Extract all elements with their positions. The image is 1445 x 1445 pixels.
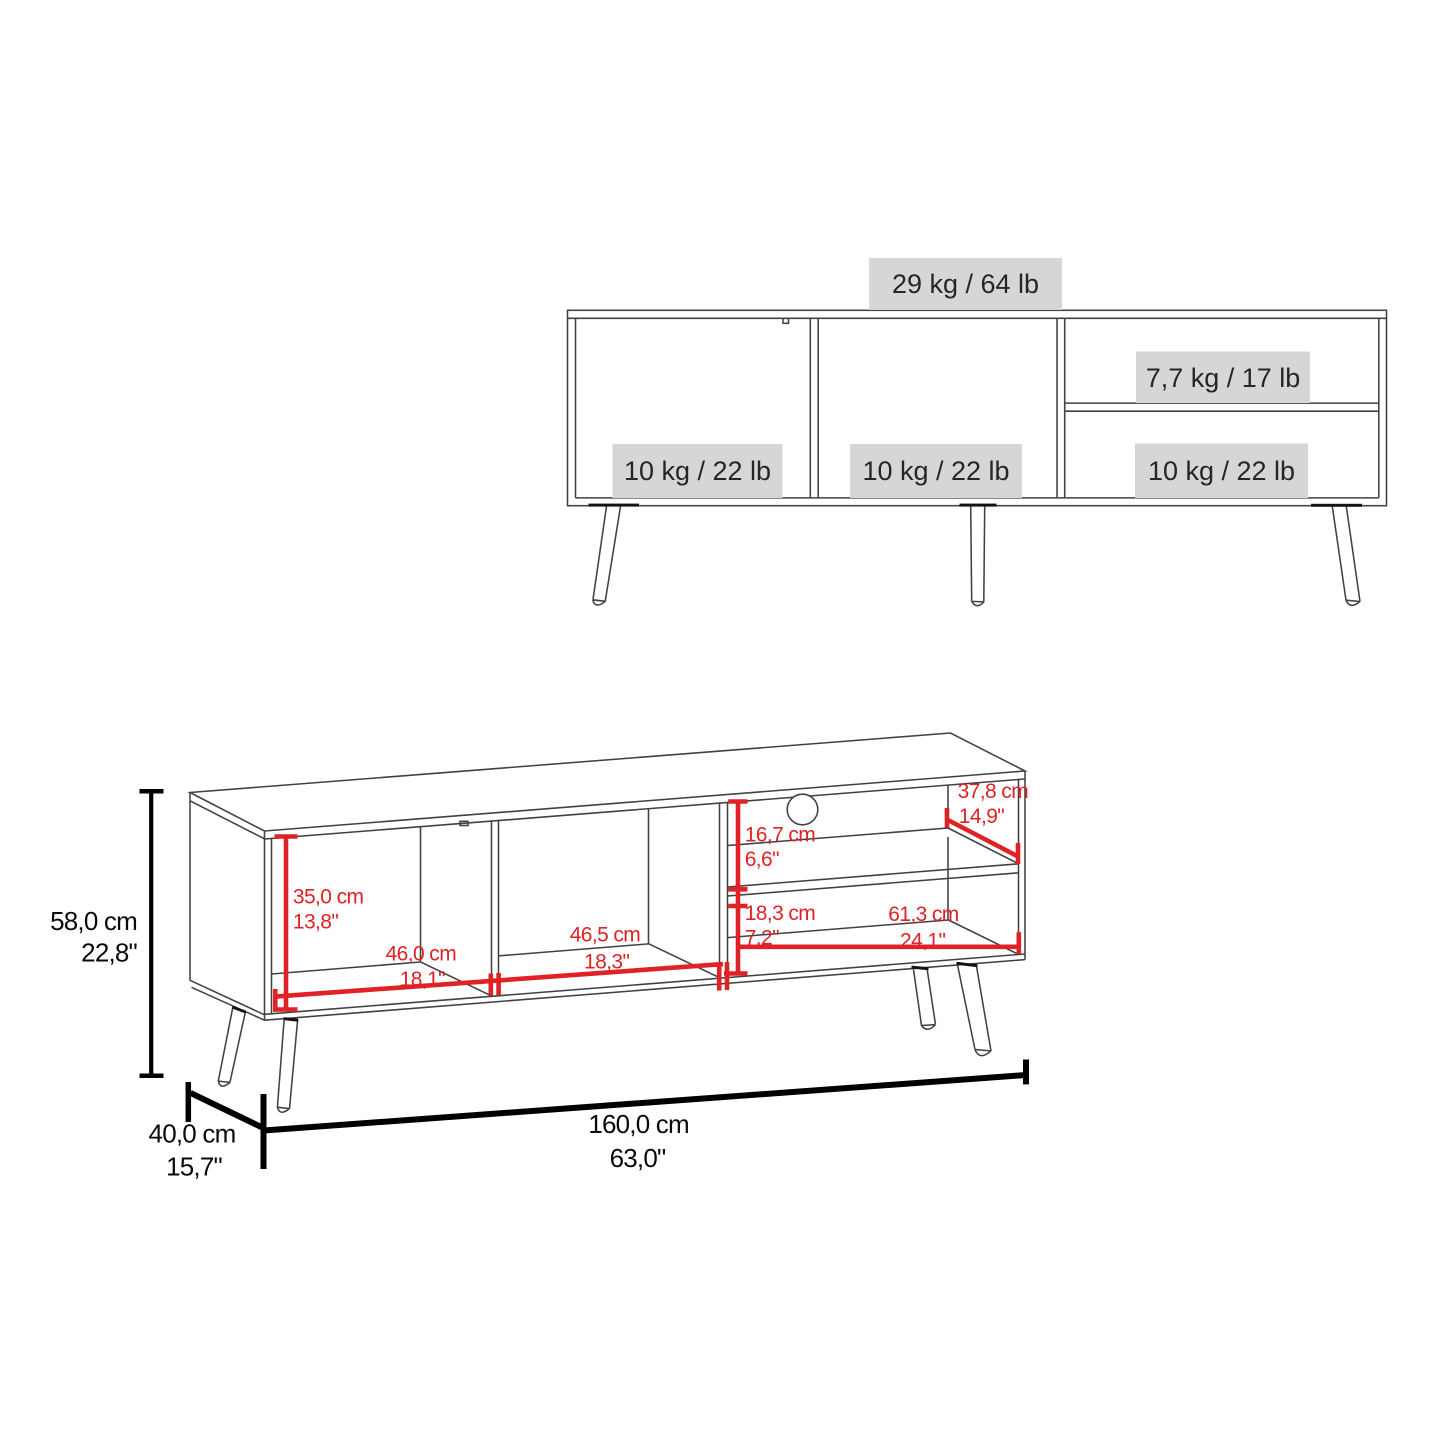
svg-text:40,0 cm: 40,0 cm [149,1119,236,1149]
svg-text:18,3 cm: 18,3 cm [745,902,816,925]
svg-text:46,5 cm: 46,5 cm [570,924,641,947]
svg-text:61,3 cm: 61,3 cm [888,903,959,926]
svg-text:14,9": 14,9" [959,805,1004,828]
svg-text:22,8": 22,8" [81,938,137,968]
svg-text:63,0": 63,0" [610,1143,666,1173]
svg-text:16,7 cm: 16,7 cm [745,824,816,847]
svg-text:29 kg / 64 lb: 29 kg / 64 lb [892,269,1039,299]
svg-text:35,0 cm: 35,0 cm [293,886,364,909]
svg-text:37,8 cm: 37,8 cm [958,780,1029,803]
svg-text:18,3": 18,3" [584,951,629,974]
svg-text:24,1": 24,1" [900,930,945,953]
svg-text:10 kg / 22 lb: 10 kg / 22 lb [1148,456,1295,486]
svg-text:7,2": 7,2" [745,927,779,950]
svg-text:46,0 cm: 46,0 cm [386,943,457,966]
svg-text:18,1": 18,1" [400,968,445,991]
svg-text:13,8": 13,8" [293,911,338,934]
svg-text:58,0 cm: 58,0 cm [50,906,137,936]
svg-text:7,7 kg / 17 lb: 7,7 kg / 17 lb [1146,363,1301,393]
svg-text:6,6": 6,6" [745,848,779,871]
svg-text:10 kg / 22 lb: 10 kg / 22 lb [624,456,771,486]
svg-text:160,0 cm: 160,0 cm [588,1109,689,1139]
svg-text:15,7": 15,7" [166,1152,222,1182]
svg-text:10 kg / 22 lb: 10 kg / 22 lb [862,456,1009,486]
